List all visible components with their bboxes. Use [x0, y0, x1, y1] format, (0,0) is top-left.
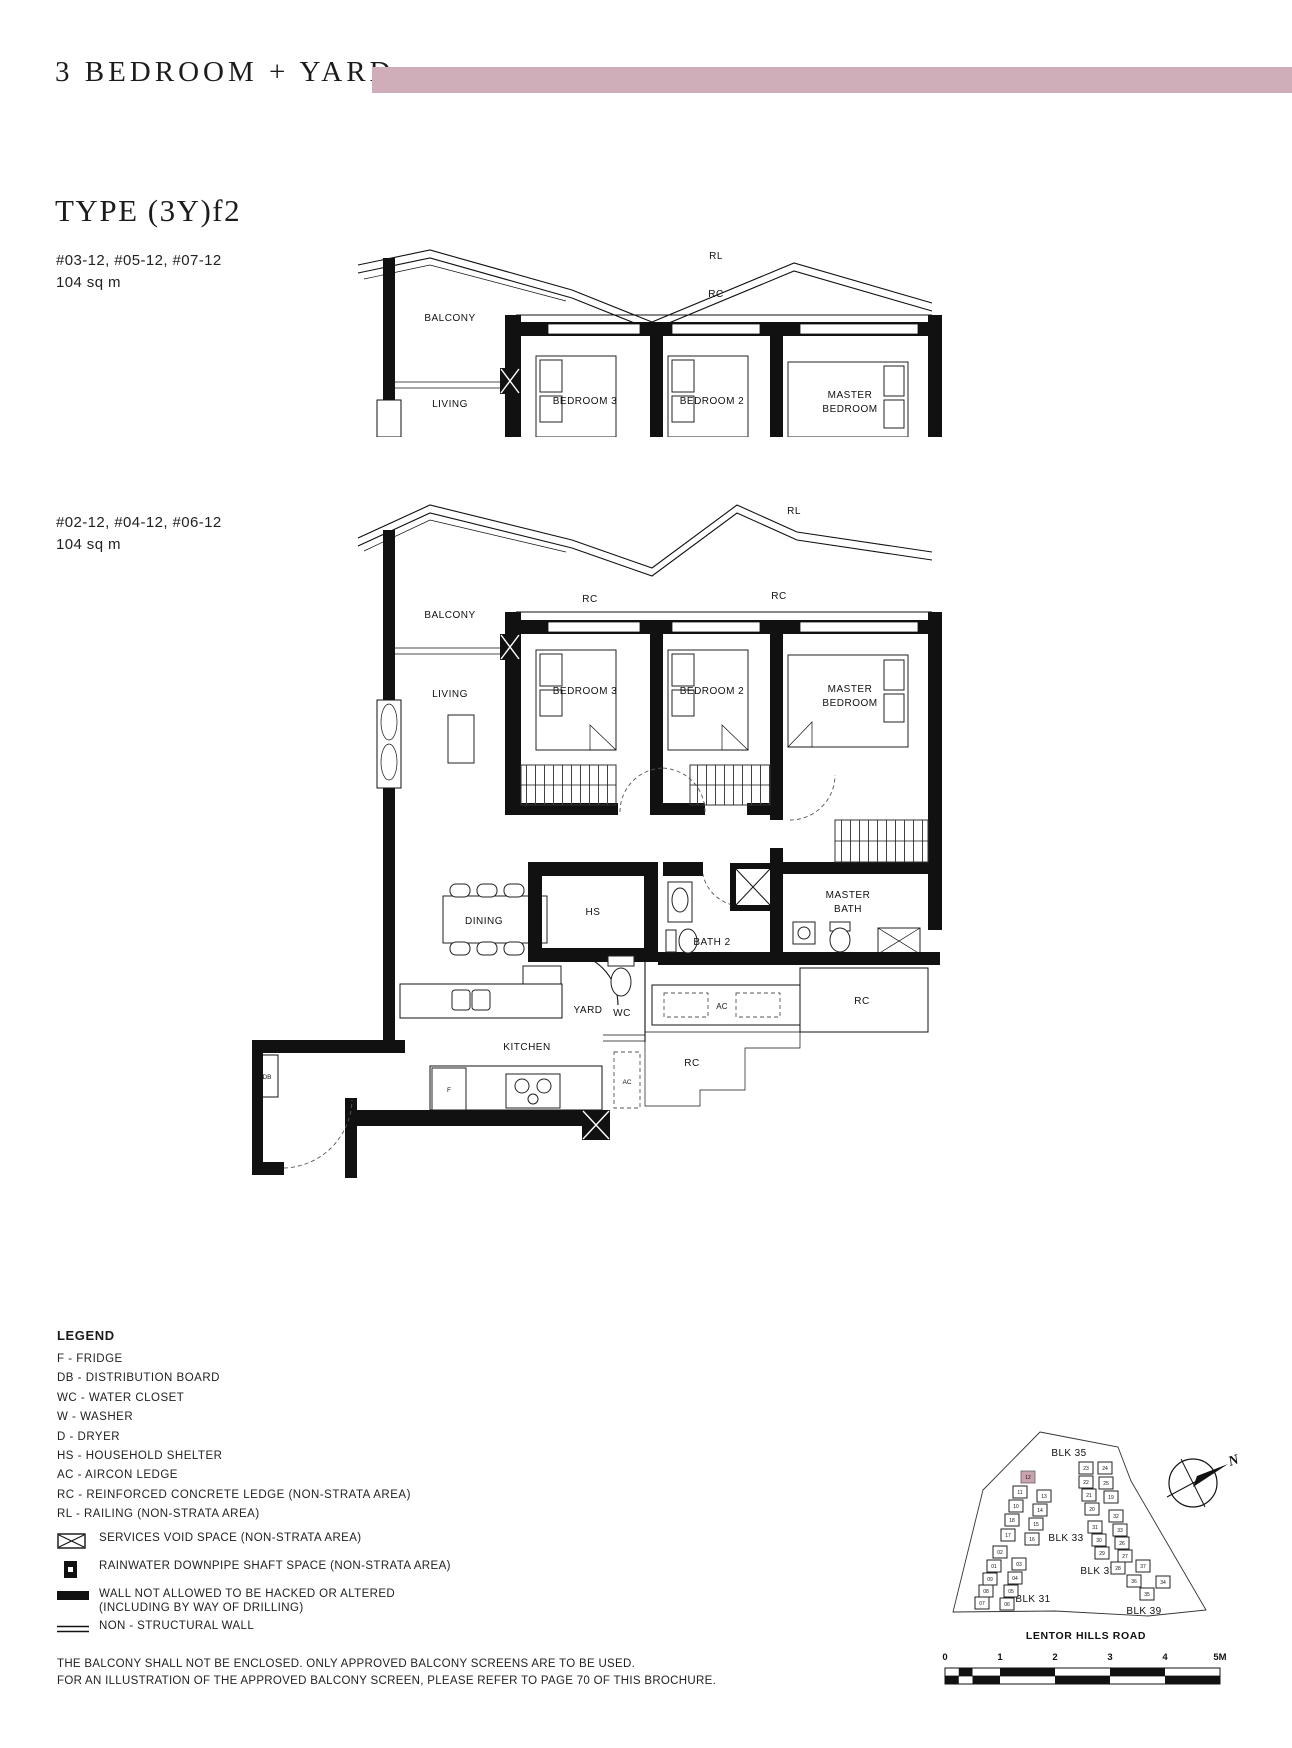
label-living: LIVING: [432, 689, 468, 700]
legend-symbol-row: SERVICES VOID SPACE (NON-STRATA AREA): [57, 1532, 697, 1555]
label-bedroom3: BEDROOM 3: [553, 686, 618, 697]
legend-symbol-row: NON - STRUCTURAL WALL: [57, 1620, 697, 1639]
svg-text:5M: 5M: [1213, 1652, 1226, 1663]
rainwater-downpipe-icon: [57, 1560, 99, 1583]
site-unit: 11: [1013, 1486, 1027, 1498]
svg-text:14: 14: [1037, 1508, 1043, 1514]
label-dining: DINING: [465, 916, 503, 927]
railing-line: [572, 505, 932, 568]
wardrobe: [521, 765, 616, 805]
bed: [668, 650, 748, 750]
svg-text:32: 32: [1113, 1514, 1119, 1520]
window: [800, 324, 918, 334]
wall: [783, 952, 940, 965]
site-unit: 19: [1104, 1491, 1118, 1503]
site-unit: 07: [975, 1597, 989, 1609]
label-rc-right: RC: [771, 591, 786, 602]
legend-item: D - DRYER: [57, 1428, 617, 1447]
window: [548, 622, 640, 632]
wall: [928, 612, 942, 930]
svg-text:1: 1: [997, 1652, 1003, 1663]
services-void-icon: [500, 634, 520, 660]
window: [548, 324, 640, 334]
label-wc: WC: [613, 1008, 631, 1019]
site-unit: 13: [1037, 1490, 1051, 1502]
services-void-icon: [582, 1110, 610, 1140]
site-unit: 24: [1098, 1462, 1112, 1474]
site-unit: 09: [983, 1573, 997, 1585]
footer-line1: THE BALCONY SHALL NOT BE ENCLOSED. ONLY …: [57, 1656, 716, 1673]
label-bedroom2: BEDROOM 2: [680, 396, 745, 407]
block-label: BLK 31: [1015, 1594, 1050, 1605]
site-unit: 14: [1033, 1504, 1047, 1516]
svg-text:16: 16: [1029, 1537, 1035, 1543]
svg-text:BATH: BATH: [834, 904, 862, 915]
side-table: [448, 715, 474, 763]
bath2-fixtures: [666, 882, 697, 953]
label-bedroom3: BEDROOM 3: [553, 396, 618, 407]
brochure-page: 3 BEDROOM + YARD TYPE (3Y)f2 #03-12, #05…: [0, 0, 1292, 1748]
label-bedroom2: BEDROOM 2: [680, 686, 745, 697]
block-label: BLK 33: [1048, 1533, 1083, 1544]
wall: [650, 336, 663, 437]
site-unit: 04: [1008, 1572, 1022, 1584]
svg-text:2: 2: [1052, 1652, 1057, 1663]
wall: [252, 1162, 284, 1175]
svg-text:3: 3: [1107, 1652, 1112, 1663]
label-rc-mid: RC: [854, 996, 869, 1007]
label-kitchen: KITCHEN: [503, 1042, 550, 1053]
label-ac: AC: [716, 1002, 728, 1011]
legend-item: DB - DISTRIBUTION BOARD: [57, 1369, 617, 1388]
svg-text:31: 31: [1092, 1525, 1098, 1531]
site-unit: 16: [1025, 1533, 1039, 1545]
window-curtain: [377, 400, 401, 437]
svg-text:01: 01: [991, 1564, 997, 1570]
svg-text:33: 33: [1117, 1528, 1123, 1534]
wall: [252, 1040, 405, 1053]
wall: [783, 862, 940, 874]
wall: [928, 315, 942, 437]
site-unit: 34: [1156, 1576, 1170, 1588]
site-unit: 23: [1079, 1462, 1093, 1474]
svg-text:12: 12: [1025, 1475, 1031, 1481]
svg-text:04: 04: [1012, 1576, 1018, 1582]
window: [672, 324, 760, 334]
svg-text:29: 29: [1099, 1551, 1105, 1557]
svg-text:06: 06: [1004, 1602, 1010, 1608]
site-unit: 30: [1092, 1534, 1106, 1546]
scale-bar: 0 1 2 3 4 5M: [942, 1652, 1226, 1684]
services-void-icon: [500, 368, 520, 394]
kitchen-counter: [400, 984, 602, 1110]
site-unit: 17: [1001, 1529, 1015, 1541]
bed: [536, 650, 616, 750]
site-unit: 32: [1109, 1510, 1123, 1522]
window: [800, 622, 918, 632]
site-unit: 06: [1000, 1598, 1014, 1610]
site-unit: 35: [1140, 1588, 1154, 1600]
site-unit: 26: [1115, 1537, 1129, 1549]
wc-fixtures: [603, 956, 645, 1041]
site-unit: 28: [1111, 1562, 1125, 1574]
wall: [252, 1053, 263, 1175]
svg-text:03: 03: [1016, 1562, 1022, 1568]
services-void-box: [733, 866, 773, 908]
label-bath2: BATH 2: [693, 937, 730, 948]
legend-symbol-row: RAINWATER DOWNPIPE SHAFT SPACE (NON-STRA…: [57, 1560, 697, 1583]
svg-text:25: 25: [1103, 1481, 1109, 1487]
svg-text:4: 4: [1162, 1652, 1168, 1663]
label-master-bedroom: MASTER: [828, 390, 873, 401]
legend: LEGEND F - FRIDGE DB - DISTRIBUTION BOAR…: [57, 1328, 617, 1525]
svg-text:30: 30: [1096, 1538, 1102, 1544]
label-rc: RC: [708, 289, 723, 300]
legend-symbol-label: WALL NOT ALLOWED TO BE HACKED OR ALTERED…: [99, 1588, 395, 1615]
wardrobe: [835, 820, 928, 862]
door-swing: [790, 775, 835, 820]
railing-line: [572, 271, 932, 330]
svg-text:27: 27: [1122, 1554, 1128, 1560]
legend-symbols: SERVICES VOID SPACE (NON-STRATA AREA) RA…: [57, 1532, 697, 1644]
wall: [345, 1098, 357, 1178]
svg-text:26: 26: [1119, 1541, 1125, 1547]
site-unit: 01: [987, 1560, 1001, 1572]
label-hs: HS: [586, 907, 601, 918]
svg-text:18: 18: [1009, 1518, 1015, 1524]
wardrobe: [690, 765, 770, 805]
site-unit: 27: [1118, 1550, 1132, 1562]
site-unit: 31: [1088, 1521, 1102, 1533]
site-unit: 03: [1012, 1558, 1026, 1570]
door-swing: [284, 1100, 352, 1168]
label-balcony: BALCONY: [424, 610, 475, 621]
wall: [650, 634, 663, 815]
svg-text:07: 07: [979, 1601, 985, 1607]
site-unit: 02: [993, 1546, 1007, 1558]
svg-text:19: 19: [1108, 1495, 1114, 1501]
legend-title: LEGEND: [57, 1328, 617, 1343]
legend-symbol-label: SERVICES VOID SPACE (NON-STRATA AREA): [99, 1532, 362, 1546]
site-unit: 05: [1004, 1585, 1018, 1597]
label-master-bedroom: MASTER: [828, 684, 873, 695]
legend-symbol-label: NON - STRUCTURAL WALL: [99, 1620, 254, 1634]
site-unit: 20: [1085, 1503, 1099, 1515]
site-unit: 25: [1099, 1477, 1113, 1489]
label-balcony: BALCONY: [424, 313, 475, 324]
site-map: BLK 35 BLK 33 BLK 31 BLK 37 BLK 39 12 11…: [953, 1432, 1242, 1642]
legend-item: RC - REINFORCED CONCRETE LEDGE (NON-STRA…: [57, 1486, 617, 1505]
label-rc-left: RC: [582, 594, 597, 605]
block-label: BLK 35: [1051, 1448, 1086, 1459]
site-unit: 22: [1079, 1476, 1093, 1488]
legend-item: AC - AIRCON LEDGE: [57, 1466, 617, 1485]
label-yard: YARD: [573, 1005, 602, 1016]
label-rl: RL: [709, 251, 723, 262]
svg-text:09: 09: [987, 1577, 993, 1583]
footer-note: THE BALCONY SHALL NOT BE ENCLOSED. ONLY …: [57, 1656, 716, 1690]
wall: [350, 1110, 582, 1126]
svg-text:08: 08: [983, 1589, 989, 1595]
legend-item: HS - HOUSEHOLD SHELTER: [57, 1447, 617, 1466]
wall: [383, 788, 395, 1042]
svg-text:36: 36: [1131, 1579, 1137, 1585]
block-label: BLK 37: [1080, 1566, 1115, 1577]
site-unit-highlighted: 12: [1021, 1471, 1035, 1483]
legend-item: W - WASHER: [57, 1408, 617, 1427]
site-unit: 29: [1095, 1547, 1109, 1559]
site-unit: 08: [979, 1585, 993, 1597]
non-structural-wall-icon: [57, 1620, 99, 1639]
legend-symbol-row: WALL NOT ALLOWED TO BE HACKED OR ALTERED…: [57, 1588, 697, 1615]
svg-text:20: 20: [1089, 1507, 1095, 1513]
site-unit: 10: [1009, 1500, 1023, 1512]
svg-text:BEDROOM: BEDROOM: [822, 698, 877, 709]
svg-text:15: 15: [1033, 1522, 1039, 1528]
wall: [658, 952, 783, 965]
label-rl: RL: [787, 506, 801, 517]
site-unit: 37: [1136, 1560, 1150, 1572]
road-label: LENTOR HILLS ROAD: [1026, 1630, 1146, 1642]
wall: [663, 862, 703, 876]
railing-line: [572, 263, 932, 322]
svg-text:28: 28: [1115, 1566, 1121, 1572]
site-unit: 33: [1113, 1524, 1127, 1536]
label-fridge: F: [447, 1087, 451, 1094]
svg-text:22: 22: [1083, 1480, 1089, 1486]
site-unit: 21: [1082, 1489, 1096, 1501]
site-unit: 36: [1127, 1575, 1141, 1587]
svg-text:0: 0: [942, 1652, 947, 1663]
services-void-icon: [57, 1532, 99, 1555]
site-unit: 15: [1029, 1518, 1043, 1530]
svg-text:35: 35: [1144, 1592, 1150, 1598]
legend-item: WC - WATER CLOSET: [57, 1389, 617, 1408]
legend-symbol-label: RAINWATER DOWNPIPE SHAFT SPACE (NON-STRA…: [99, 1560, 451, 1574]
svg-text:11: 11: [1017, 1490, 1022, 1496]
floor-plan-lower: RL RC RC BALCONY: [252, 505, 942, 1178]
wall: [770, 336, 783, 437]
wall: [770, 634, 783, 820]
rc-ledge: [645, 1032, 800, 1106]
accent-bar: [372, 67, 1292, 93]
block-label: BLK 39: [1126, 1606, 1161, 1617]
legend-item: F - FRIDGE: [57, 1350, 617, 1369]
svg-text:13: 13: [1041, 1494, 1047, 1500]
floor-plan-upper: RL RC BALCONY: [358, 250, 942, 437]
svg-text:21: 21: [1086, 1493, 1092, 1499]
label-master-bath: MASTER: [826, 890, 871, 901]
structural-wall-icon: [57, 1588, 99, 1607]
legend-item: RL - RAILING (NON-STRATA AREA): [57, 1505, 617, 1524]
svg-text:34: 34: [1160, 1580, 1166, 1586]
master-bath-fixtures: [793, 922, 920, 954]
north-compass-icon: N: [1167, 1452, 1242, 1507]
label-living: LIVING: [432, 399, 468, 410]
svg-text:37: 37: [1140, 1564, 1146, 1570]
svg-text:BEDROOM: BEDROOM: [822, 404, 877, 415]
svg-text:17: 17: [1005, 1533, 1011, 1539]
window: [672, 622, 760, 632]
label-db: DB: [262, 1074, 271, 1081]
site-unit: 18: [1005, 1514, 1019, 1526]
north-label: N: [1226, 1452, 1242, 1470]
wall: [383, 530, 395, 700]
svg-text:05: 05: [1008, 1589, 1014, 1595]
svg-text:02: 02: [997, 1550, 1003, 1556]
footer-line2: FOR AN ILLUSTRATION OF THE APPROVED BALC…: [57, 1673, 716, 1690]
svg-text:10: 10: [1013, 1504, 1019, 1510]
svg-text:24: 24: [1102, 1466, 1108, 1472]
label-rc-low: RC: [684, 1058, 699, 1069]
svg-text:23: 23: [1083, 1466, 1089, 1472]
label-ac-low: AC: [622, 1079, 631, 1086]
